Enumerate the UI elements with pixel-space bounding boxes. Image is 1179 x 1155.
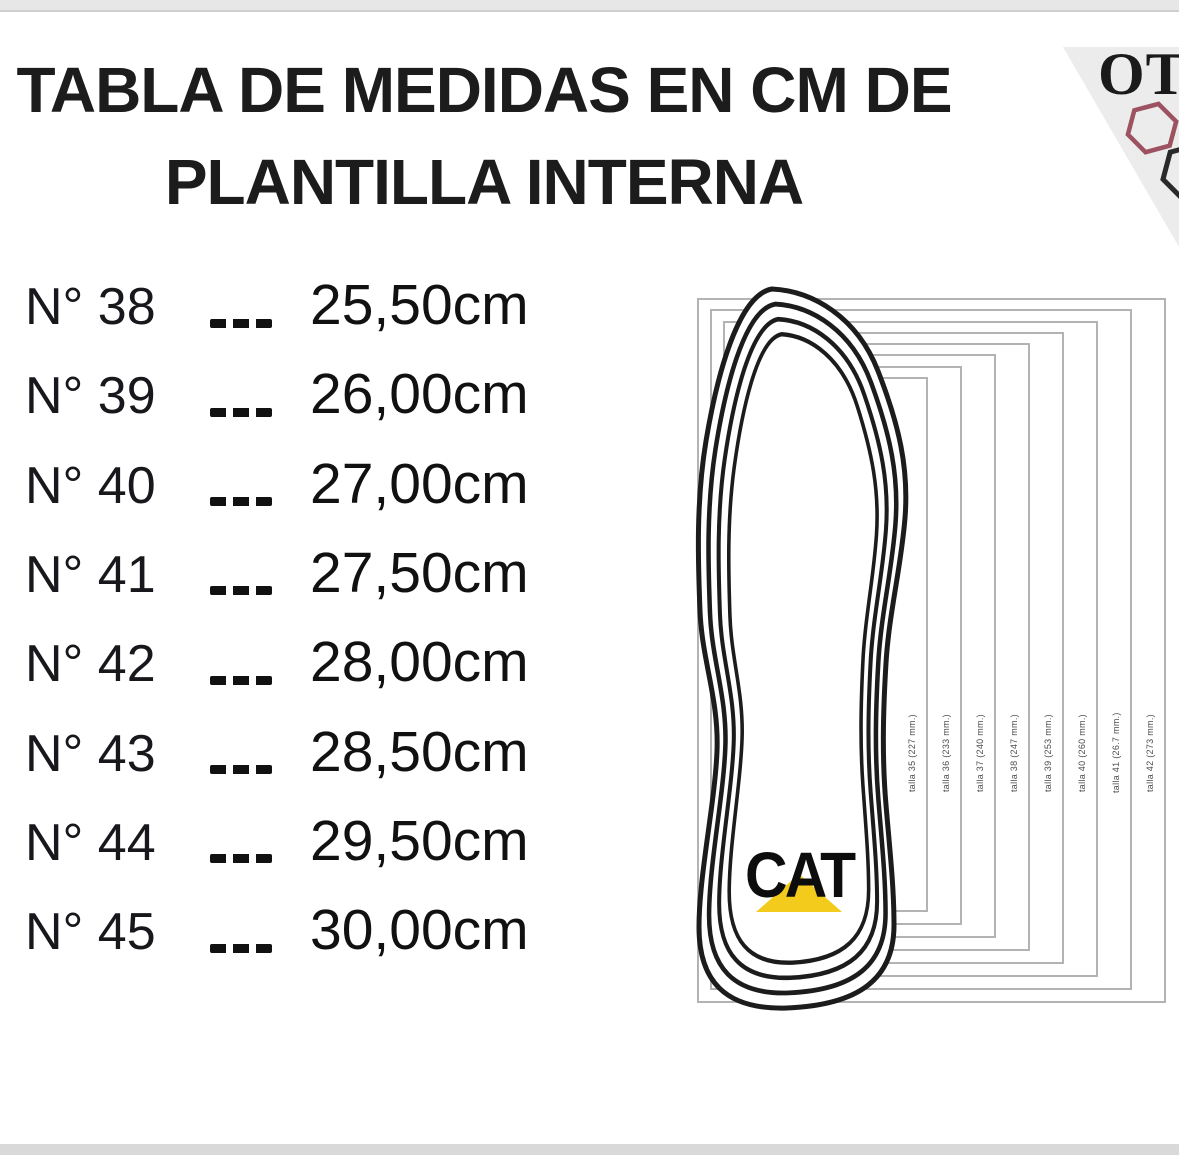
table-row: N° 41 27,50cm [0, 540, 600, 630]
table-row: N° 40 27,00cm [0, 451, 600, 541]
corner-logo-text: OT [1098, 40, 1179, 109]
size-value: 27,00cm [310, 451, 529, 517]
size-label: N° 44 [25, 813, 210, 873]
dash-separator [210, 944, 272, 953]
table-row: N° 38 25,50cm [0, 272, 600, 362]
size-label: N° 42 [25, 634, 210, 694]
dash-separator [210, 586, 272, 595]
size-label: N° 41 [25, 545, 210, 605]
page-title-line2: PLANTILLA INTERNA [0, 136, 990, 228]
size-label: N° 43 [25, 724, 210, 784]
size-value: 28,00cm [310, 629, 529, 695]
size-value: 26,00cm [310, 361, 529, 427]
dash-separator [210, 497, 272, 506]
dash-separator [210, 765, 272, 774]
size-outline-label: talla 39 (253 mm.) [1040, 688, 1056, 818]
dash-separator [210, 676, 272, 685]
size-outline-label: talla 38 (247 mm.) [1006, 688, 1022, 818]
size-value: 27,50cm [310, 540, 529, 606]
table-row: N° 42 28,00cm [0, 629, 600, 719]
size-outline-label: talla 42 (273 mm.) [1142, 688, 1158, 818]
table-row: N° 39 26,00cm [0, 361, 600, 451]
top-border-strip [0, 0, 1179, 12]
dash-separator [210, 854, 272, 863]
size-chart-image: TABLA DE MEDIDAS EN CM DE PLANTILLA INTE… [0, 0, 1179, 1155]
hexagons-icon [1090, 95, 1179, 225]
dash-separator [210, 319, 272, 328]
size-outline-label: talla 40 (260 mm.) [1074, 688, 1090, 818]
size-value: 29,50cm [310, 808, 529, 874]
dash-separator [210, 408, 272, 417]
size-label: N° 39 [25, 366, 210, 426]
table-row: N° 45 30,00cm [0, 897, 600, 987]
size-outline-label: talla 37 (240 mm.) [972, 688, 988, 818]
table-row: N° 44 29,50cm [0, 808, 600, 898]
size-value: 28,50cm [310, 719, 529, 785]
size-label: N° 40 [25, 456, 210, 516]
page-title: TABLA DE MEDIDAS EN CM DE PLANTILLA INTE… [0, 44, 990, 228]
size-outline-label: talla 36 (233 mm.) [938, 688, 954, 818]
table-row: N° 43 28,50cm [0, 719, 600, 809]
size-label: N° 38 [25, 277, 210, 337]
size-outline-label: talla 41 (26.7 mm.) [1108, 688, 1124, 818]
size-label: N° 45 [25, 902, 210, 962]
bottom-border-strip [0, 1144, 1179, 1155]
size-value: 25,50cm [310, 272, 529, 338]
size-value: 30,00cm [310, 897, 529, 963]
page-title-line1: TABLA DE MEDIDAS EN CM DE [0, 44, 990, 136]
cat-logo-text: CAT [745, 838, 846, 912]
